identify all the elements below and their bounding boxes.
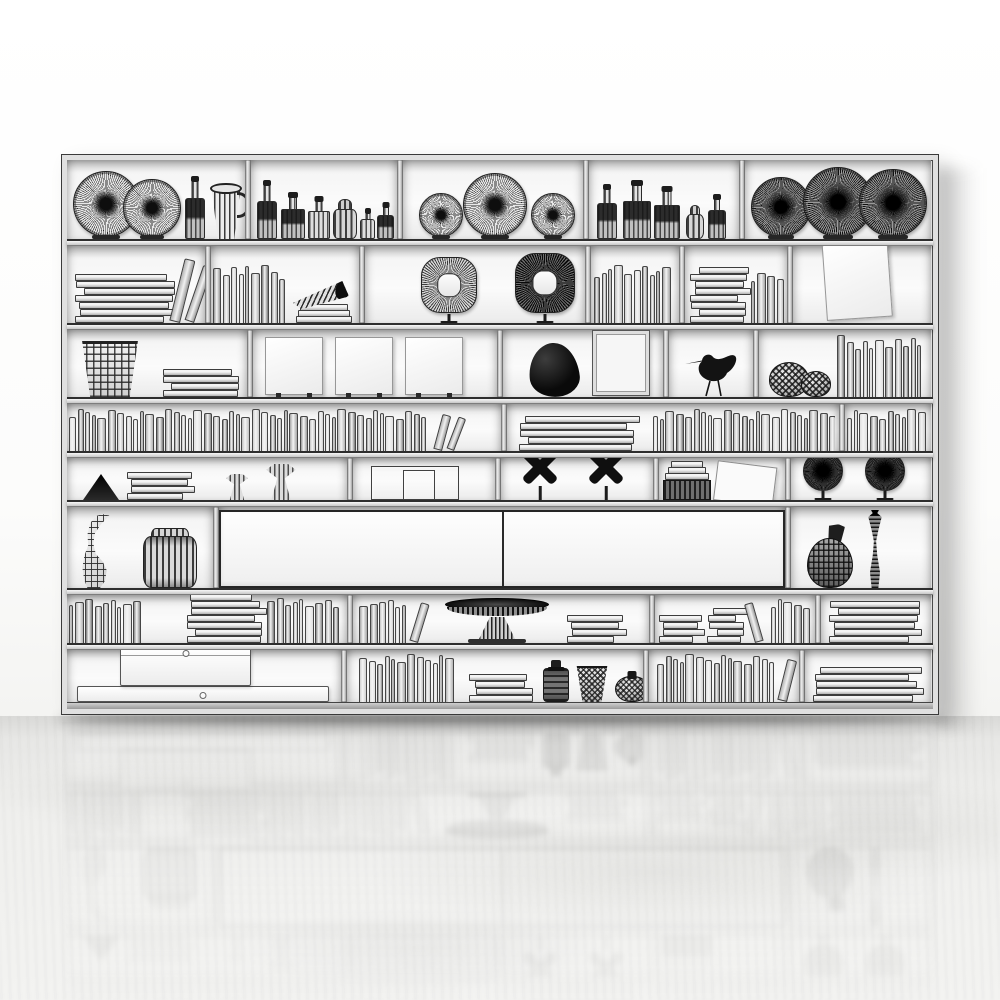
- book-spine: [117, 413, 124, 451]
- bottle-cap: [713, 194, 721, 200]
- canvas-panel: [822, 246, 893, 321]
- shelf-divider: [247, 330, 253, 397]
- stacked-book: [659, 615, 702, 622]
- book-spine: [103, 603, 109, 643]
- book-spine: [111, 600, 116, 643]
- shelf-section: [659, 458, 785, 500]
- book-row: [213, 265, 289, 323]
- stacked-book: [659, 636, 693, 643]
- book-stack: [659, 613, 703, 643]
- cone-mouth: [332, 276, 355, 302]
- x-sculpture: [519, 458, 561, 500]
- book-spine: [701, 412, 706, 451]
- bottle-body: [623, 201, 651, 239]
- stacked-book: [671, 461, 703, 468]
- stacked-book: [187, 615, 255, 622]
- bottle-cap: [315, 196, 324, 202]
- bottle-cap: [365, 208, 371, 214]
- book-spine: [837, 335, 845, 397]
- stacked-book: [75, 274, 167, 281]
- easel-foot: [307, 393, 312, 397]
- book-spine: [911, 338, 916, 397]
- book-spine: [309, 419, 316, 451]
- book-stack: [127, 470, 193, 500]
- book-spine: [397, 662, 406, 702]
- bottle-body: [360, 219, 375, 239]
- book-spine: [300, 416, 308, 451]
- book-spine: [156, 417, 164, 451]
- book-stack: [75, 272, 175, 323]
- book-spine: [85, 599, 93, 643]
- book-spine: [673, 659, 678, 702]
- shelf-divider: [347, 458, 353, 500]
- book-spine: [126, 416, 132, 451]
- shaker-body: [333, 209, 357, 239]
- bottle: [360, 209, 375, 239]
- shelf-divider: [585, 246, 591, 323]
- book-spine: [771, 607, 776, 643]
- stacked-book: [79, 302, 169, 309]
- stacked-book: [820, 667, 922, 674]
- book-spine: [742, 416, 748, 451]
- book-spine: [213, 268, 221, 323]
- book-spine: [804, 418, 808, 451]
- stacked-book: [572, 629, 627, 636]
- book-spine: [325, 414, 330, 451]
- book-spine: [391, 659, 395, 702]
- book-spine: [277, 418, 282, 451]
- shelf-divider: [213, 507, 219, 588]
- stacked-book: [834, 629, 922, 636]
- book-row: [847, 409, 929, 451]
- book-row: [657, 654, 775, 702]
- book-stack: [829, 599, 921, 643]
- easel-foot: [416, 393, 421, 397]
- book-spine: [69, 417, 76, 451]
- book-spine: [676, 414, 684, 451]
- decorative-plate: [419, 193, 463, 237]
- stacked-book: [838, 608, 920, 615]
- book-stack: [519, 414, 637, 451]
- book-spine: [820, 413, 828, 451]
- bottle-cap: [662, 186, 673, 192]
- book-spine: [140, 411, 144, 451]
- shelf-board: [67, 643, 933, 650]
- bowl-stem: [479, 617, 515, 639]
- radial-disk-sculpture: [865, 458, 905, 500]
- book-spine: [721, 655, 726, 702]
- book-spine: [713, 418, 722, 451]
- shelf-section: [67, 246, 205, 323]
- book-spine: [123, 604, 132, 643]
- stacked-book: [127, 493, 183, 500]
- book-spine: [315, 603, 323, 643]
- stacked-book: [663, 622, 698, 629]
- book-spine: [653, 416, 658, 451]
- book-spine: [751, 281, 755, 323]
- ring-face: [421, 257, 477, 313]
- book-spine: [656, 271, 660, 323]
- stacked-book: [191, 608, 267, 615]
- book-spine: [251, 273, 260, 323]
- radial-disk-sculpture: [803, 458, 843, 500]
- vase-body: [807, 538, 853, 588]
- book-spine: [181, 415, 186, 451]
- book-row: [69, 409, 427, 451]
- bottle-body: [281, 209, 305, 239]
- stacked-book: [469, 695, 533, 702]
- stacked-book: [475, 681, 525, 688]
- stacked-book: [191, 601, 260, 608]
- book-spine: [761, 414, 770, 451]
- shelf-section: [805, 650, 931, 702]
- stacked-book: [815, 674, 909, 681]
- book-spine: [75, 602, 84, 643]
- shelf-divider: [785, 458, 791, 500]
- shelf-divider: [341, 650, 347, 702]
- book-spine: [855, 349, 861, 397]
- book-spine: [188, 418, 192, 451]
- book-spine: [279, 279, 285, 323]
- book-spine: [602, 273, 607, 323]
- small-urn: [225, 474, 249, 500]
- stacked-book: [695, 288, 751, 295]
- book-row: [751, 273, 785, 323]
- book-row: [837, 335, 927, 397]
- book-spine: [95, 606, 102, 643]
- book-stack: [187, 595, 263, 643]
- book-spine: [778, 599, 782, 643]
- book-spine: [694, 409, 700, 451]
- stacked-book: [695, 281, 744, 288]
- book-spine: [277, 598, 284, 643]
- canister-collar: [548, 667, 565, 671]
- vase-cap: [628, 671, 637, 679]
- book-spine: [777, 279, 784, 323]
- book-spine: [708, 415, 712, 451]
- disk-face: [803, 458, 843, 491]
- shelf-section: [403, 160, 583, 239]
- book-spine: [325, 600, 332, 643]
- book-spine: [293, 602, 298, 643]
- stacked-book: [690, 295, 738, 302]
- book-spine: [744, 664, 752, 702]
- book-spine: [772, 417, 780, 451]
- easel-foot: [346, 393, 351, 397]
- bottle-cap: [603, 184, 611, 190]
- book-spine: [794, 605, 802, 643]
- book-spine: [236, 414, 240, 451]
- shelf-divider: [653, 458, 659, 500]
- book-spine: [133, 601, 141, 643]
- book-spine: [407, 654, 415, 702]
- pedestal-bowl: [445, 598, 549, 643]
- bottle-cap: [191, 176, 199, 182]
- shelf-section: [507, 404, 839, 451]
- stacked-book: [171, 383, 239, 390]
- book-spine: [594, 277, 600, 323]
- book-spine: [388, 600, 394, 643]
- bottle-cap: [263, 180, 271, 186]
- jar-body: [143, 536, 197, 588]
- cone-on-books: [293, 279, 355, 323]
- book-spine: [797, 415, 802, 451]
- shelf-section: [821, 595, 931, 643]
- stacked-book: [834, 622, 915, 629]
- stacked-book: [519, 444, 632, 451]
- easel-foot: [276, 393, 281, 397]
- stacked-book: [567, 636, 614, 643]
- book-spine: [724, 410, 732, 451]
- stacked-book: [571, 622, 619, 629]
- book-spine: [223, 275, 230, 323]
- book-spine: [445, 658, 454, 702]
- shelf-divider: [799, 650, 805, 702]
- shelf-divider: [649, 595, 655, 643]
- book-spine: [270, 415, 276, 451]
- stacked-book: [668, 467, 706, 474]
- book-spine: [241, 417, 250, 451]
- shelf-section: [793, 246, 931, 323]
- stacked-book: [708, 615, 736, 622]
- x-sculpture: [585, 458, 627, 500]
- book-row: [359, 599, 407, 643]
- book-stack: [690, 265, 748, 323]
- book-spine: [847, 342, 854, 397]
- bottle-body: [377, 215, 394, 239]
- book-spine: [396, 419, 404, 451]
- book-spine: [902, 417, 906, 451]
- sideboard-cabinet: [219, 510, 785, 588]
- bottle: [377, 203, 394, 239]
- decorative-plate: [463, 173, 527, 237]
- shelf-section: [219, 507, 785, 588]
- shelf-section: [67, 160, 245, 239]
- shelf-section: [365, 246, 585, 323]
- shelf-divider: [739, 160, 745, 239]
- shelf-section: [791, 507, 931, 588]
- shelf-divider: [787, 246, 793, 323]
- bottle: [708, 195, 726, 239]
- shelf-board: [67, 588, 933, 595]
- unit-contact-shadow: [56, 713, 948, 726]
- shelf-row: [67, 458, 933, 500]
- book-spine: [696, 657, 704, 702]
- stacked-book: [699, 267, 749, 274]
- bottle-cap: [288, 192, 298, 198]
- book-spine: [359, 606, 368, 643]
- ribbed-box-with-stack: [663, 466, 711, 500]
- picture-frame: [593, 331, 649, 395]
- bottle-body: [185, 198, 205, 239]
- book-spine: [756, 411, 760, 451]
- shelf-section: [669, 330, 753, 397]
- stacked-book: [80, 309, 177, 316]
- unit-wall-shadow: [938, 168, 986, 728]
- bottle-cap: [382, 202, 389, 208]
- book-row: [69, 598, 145, 643]
- stacked-book: [469, 674, 527, 681]
- stacked-book: [296, 316, 352, 323]
- book-spine: [405, 411, 412, 451]
- book-spine: [903, 346, 909, 397]
- book-spine: [359, 658, 367, 702]
- book-row: [771, 599, 813, 643]
- shelf-row: [67, 330, 933, 397]
- book-spine: [299, 599, 303, 643]
- cocktail-shaker: [686, 205, 704, 239]
- sculpture-stand: [544, 314, 547, 323]
- book-spine: [305, 606, 314, 643]
- book-spine: [193, 410, 202, 451]
- shelf-section: [211, 246, 359, 323]
- canvas-panel: [265, 337, 323, 395]
- book-spine: [92, 415, 96, 451]
- book-spine: [417, 657, 424, 702]
- stacked-book: [663, 629, 705, 636]
- book-spine: [757, 273, 766, 323]
- shelf-divider: [495, 458, 501, 500]
- book-spine: [229, 411, 234, 451]
- stacked-book: [830, 601, 920, 608]
- book-spine: [869, 348, 873, 397]
- book-spine: [425, 660, 431, 702]
- plate-stand: [140, 235, 165, 239]
- stacked-book: [131, 479, 188, 486]
- shelf-section: [253, 330, 497, 397]
- stacked-book: [520, 423, 627, 430]
- canvas-panel: [335, 337, 393, 395]
- shelf-section: [845, 404, 931, 451]
- lower-box: [77, 686, 329, 702]
- book-spine: [642, 266, 648, 323]
- book-spine: [332, 417, 336, 451]
- book-spine: [767, 276, 775, 323]
- shelf-divider: [205, 246, 211, 323]
- book-spine: [117, 607, 121, 643]
- shelf-section: [353, 458, 495, 500]
- decorative-plate: [859, 169, 927, 237]
- book-spine: [714, 663, 720, 702]
- book-spine: [204, 413, 212, 451]
- sculpture-stand: [605, 486, 608, 500]
- book-spine: [385, 416, 394, 451]
- sculpture-stand: [822, 491, 825, 500]
- book-spine: [289, 413, 298, 451]
- book-spine: [261, 412, 268, 451]
- easel-foot: [377, 393, 382, 397]
- book-row: [594, 265, 676, 323]
- ribbed-jar: [143, 528, 197, 588]
- stacked-book: [163, 369, 232, 376]
- upper-box: [120, 650, 251, 686]
- shelf-divider: [497, 330, 503, 397]
- book-spine: [165, 409, 172, 451]
- book-spine: [348, 412, 356, 451]
- storage-boxes: [77, 650, 329, 702]
- book-spine: [705, 660, 712, 702]
- book-spine: [918, 412, 926, 451]
- shelf-divider: [359, 246, 365, 323]
- sculpture-stand: [448, 314, 451, 323]
- shelf-section: [67, 650, 341, 702]
- book-spine: [284, 410, 288, 451]
- shelf-divider: [815, 595, 821, 643]
- book-spine: [624, 274, 632, 323]
- book-spine: [875, 340, 884, 397]
- pyramid-sculpture: [83, 474, 119, 500]
- bottle: [185, 177, 205, 239]
- book-spine: [685, 654, 694, 702]
- book-spine: [69, 605, 73, 643]
- shelf-section: [685, 246, 787, 323]
- stacked-book: [699, 309, 746, 316]
- stacked-book: [713, 608, 749, 615]
- book-spine: [728, 658, 732, 702]
- book-spine: [402, 605, 406, 643]
- shelf-section: [745, 160, 931, 239]
- book-spine: [174, 412, 180, 451]
- book-spine: [395, 607, 400, 643]
- cabinet-door-seam: [502, 512, 504, 586]
- pitcher-handle: [237, 192, 245, 218]
- stacked-book: [717, 629, 744, 636]
- shelf-board: [67, 451, 933, 458]
- book-spine: [614, 265, 623, 323]
- vase-body: [861, 510, 889, 588]
- ring-sculpture: [515, 253, 575, 323]
- shelf-section: [67, 458, 347, 500]
- shelf-divider: [753, 330, 759, 397]
- book-spine: [439, 655, 443, 702]
- stacked-book: [163, 390, 238, 397]
- shelf-divider: [583, 160, 589, 239]
- stacked-book: [84, 288, 175, 295]
- book-spine: [380, 413, 384, 451]
- plate-stand: [768, 235, 794, 239]
- book-row: [359, 654, 457, 702]
- plate-stand: [92, 235, 120, 239]
- bottle-body: [308, 211, 330, 239]
- book-spine: [870, 416, 878, 451]
- book-spine: [885, 347, 893, 397]
- shelf-row: [67, 160, 933, 239]
- shelf-row: [67, 650, 933, 702]
- book-spine: [749, 419, 754, 451]
- stacked-book: [829, 636, 909, 643]
- shelf-section: [347, 650, 643, 702]
- shelf-divider: [785, 507, 791, 588]
- book-spine: [657, 664, 664, 702]
- scene: [0, 0, 1000, 1000]
- ring-hole: [532, 270, 557, 295]
- stacked-book: [131, 486, 195, 493]
- stacked-book: [816, 688, 924, 695]
- bottle: [654, 187, 680, 239]
- book-stack: [707, 606, 747, 643]
- stacked-book: [163, 376, 239, 383]
- book-row: [267, 598, 345, 643]
- stacked-book: [690, 316, 744, 323]
- shelf-row: [67, 246, 933, 323]
- bottle: [257, 181, 277, 239]
- book-spine: [895, 414, 900, 451]
- book-spine: [803, 608, 810, 643]
- book-spine: [781, 409, 788, 451]
- pitcher: [209, 183, 243, 239]
- bottle: [597, 185, 617, 239]
- book-stack: [567, 613, 625, 643]
